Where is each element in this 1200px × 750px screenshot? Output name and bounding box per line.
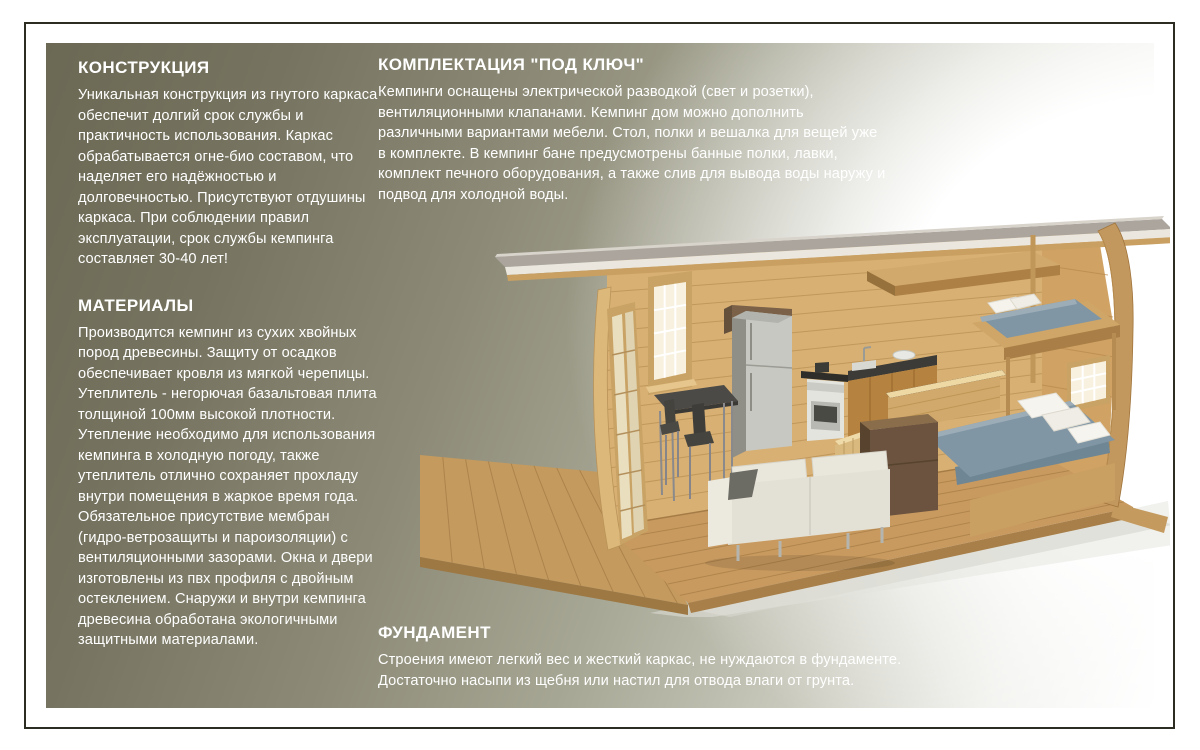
kitchen-window bbox=[646, 271, 697, 395]
bedroom-window bbox=[1067, 355, 1110, 412]
section-materials: МАТЕРИАЛЫ Производится кемпинг из сухих … bbox=[78, 296, 378, 651]
foundation-heading: ФУНДАМЕНТ bbox=[378, 623, 953, 643]
brochure-page: КОНСТРУКЦИЯ Уникальная конструкция из гн… bbox=[0, 0, 1200, 750]
construction-heading: КОНСТРУКЦИЯ bbox=[78, 58, 378, 78]
materials-heading: МАТЕРИАЛЫ bbox=[78, 296, 378, 316]
materials-body: Производится кемпинг из сухих хвойных по… bbox=[78, 323, 378, 651]
package-body: Кемпинги оснащены электрической разводко… bbox=[378, 82, 886, 205]
fridge bbox=[732, 311, 792, 458]
left-column: КОНСТРУКЦИЯ Уникальная конструкция из гн… bbox=[78, 58, 378, 651]
section-construction: КОНСТРУКЦИЯ Уникальная конструкция из гн… bbox=[78, 58, 378, 270]
section-package: КОМПЛЕКТАЦИЯ "ПОД КЛЮЧ" Кемпинги оснащен… bbox=[378, 55, 886, 205]
section-foundation: ФУНДАМЕНТ Строения имеют легкий вес и же… bbox=[378, 623, 953, 691]
construction-body: Уникальная конструкция из гнутого каркас… bbox=[78, 85, 378, 270]
house-cutaway-illustration bbox=[420, 205, 1170, 617]
foundation-body: Строения имеют легкий вес и жесткий карк… bbox=[378, 650, 953, 691]
package-heading: КОМПЛЕКТАЦИЯ "ПОД КЛЮЧ" bbox=[378, 55, 886, 75]
